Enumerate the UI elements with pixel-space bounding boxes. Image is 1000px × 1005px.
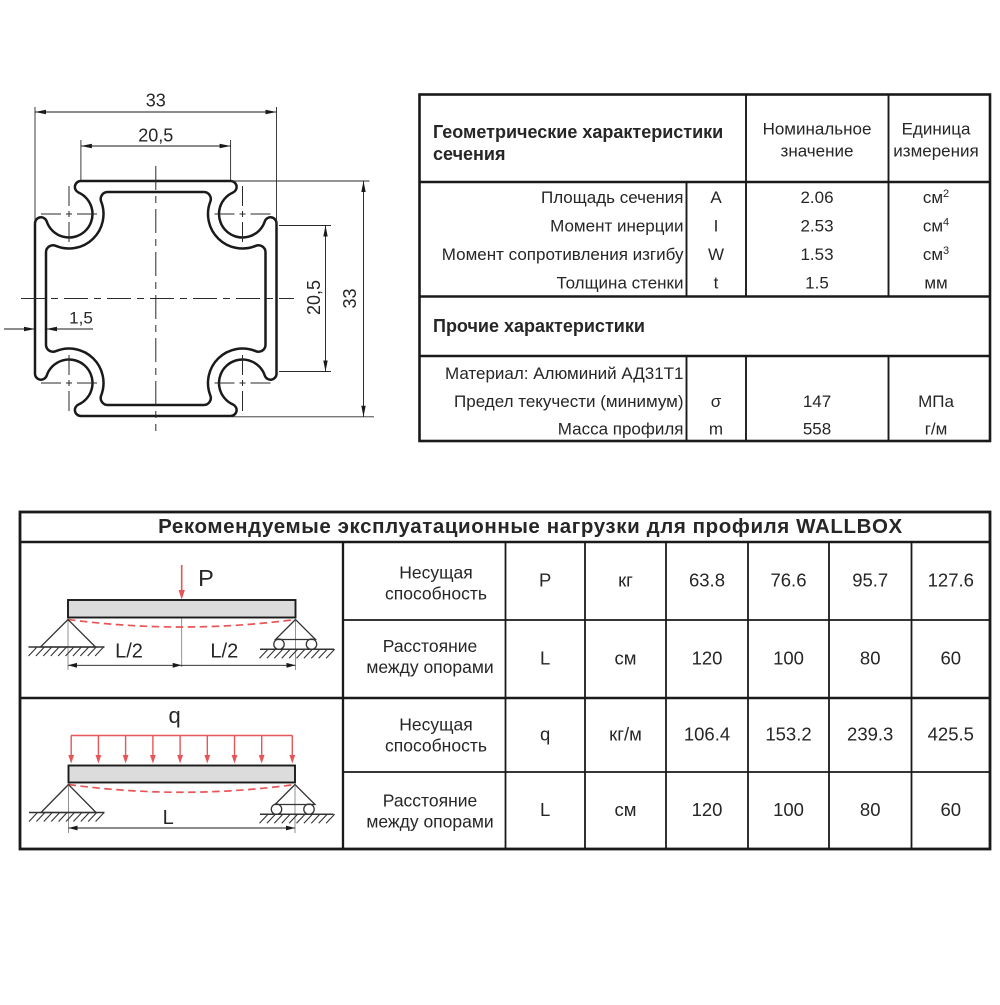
svg-text:см3: см3 [923, 245, 949, 264]
svg-text:Несущая: Несущая [399, 715, 472, 735]
svg-text:Рекомендуемые эксплуатационные: Рекомендуемые эксплуатационные нагрузки … [158, 515, 903, 538]
svg-text:сечения: сечения [433, 144, 505, 164]
svg-text:127.6: 127.6 [928, 570, 974, 591]
svg-text:120: 120 [692, 648, 723, 669]
svg-text:Момент инерции: Момент инерции [550, 217, 683, 236]
svg-text:63.8: 63.8 [689, 570, 725, 591]
svg-text:80: 80 [860, 648, 881, 669]
svg-text:239.3: 239.3 [847, 724, 893, 745]
svg-text:способность: способность [385, 584, 487, 604]
svg-text:Геометрические характеристики: Геометрические характеристики [433, 122, 723, 142]
svg-text:Масса профиля: Масса профиля [558, 420, 684, 439]
svg-text:см2: см2 [923, 188, 949, 207]
svg-text:Расстояние: Расстояние [383, 791, 478, 811]
svg-text:1.53: 1.53 [800, 245, 833, 264]
svg-text:Расстояние: Расстояние [383, 636, 478, 656]
svg-text:см4: см4 [923, 217, 949, 236]
svg-text:P: P [539, 570, 551, 591]
svg-text:147: 147 [803, 392, 831, 411]
svg-text:Площадь сечения: Площадь сечения [541, 188, 684, 207]
svg-text:измерения: измерения [893, 142, 978, 161]
svg-text:153.2: 153.2 [765, 724, 811, 745]
svg-text:Толщина стенки: Толщина стенки [557, 274, 684, 293]
svg-text:106.4: 106.4 [684, 724, 730, 745]
svg-text:20,5: 20,5 [138, 126, 173, 146]
svg-text:558: 558 [803, 420, 831, 439]
svg-text:L/2: L/2 [210, 641, 238, 663]
svg-text:20,5: 20,5 [304, 280, 324, 315]
svg-text:2.53: 2.53 [800, 217, 833, 236]
svg-text:q: q [540, 724, 550, 745]
svg-text:100: 100 [773, 799, 804, 820]
svg-text:60: 60 [941, 648, 962, 669]
svg-text:L: L [163, 807, 174, 829]
svg-text:A: A [710, 188, 722, 207]
svg-text:между опорами: между опорами [366, 657, 493, 677]
svg-text:мм: мм [924, 274, 947, 293]
svg-text:95.7: 95.7 [852, 570, 888, 591]
svg-text:Момент сопротивления изгибу: Момент сопротивления изгибу [442, 245, 684, 264]
svg-text:кг/м: кг/м [609, 724, 642, 745]
svg-text:W: W [708, 245, 724, 264]
svg-text:способность: способность [385, 736, 487, 756]
svg-text:80: 80 [860, 799, 881, 820]
svg-text:L: L [540, 648, 550, 669]
svg-text:σ: σ [711, 392, 722, 411]
svg-text:Прочие характеристики: Прочие характеристики [433, 316, 645, 336]
svg-text:кг: кг [618, 570, 633, 591]
svg-text:120: 120 [692, 799, 723, 820]
svg-text:см: см [615, 799, 637, 820]
svg-text:между опорами: между опорами [366, 812, 493, 832]
svg-text:Материал: Алюминий АД31Т1: Материал: Алюминий АД31Т1 [445, 364, 684, 383]
svg-text:см: см [615, 648, 637, 669]
svg-text:I: I [714, 217, 719, 236]
svg-text:q: q [168, 703, 180, 728]
svg-text:33: 33 [146, 91, 166, 111]
svg-text:t: t [714, 274, 719, 293]
svg-text:Предел текучести (минимум): Предел текучести (минимум) [454, 392, 683, 411]
svg-text:L/2: L/2 [115, 641, 143, 663]
svg-text:Единица: Единица [902, 120, 971, 139]
svg-text:76.6: 76.6 [770, 570, 806, 591]
svg-text:г/м: г/м [925, 420, 948, 439]
svg-text:Номинальное: Номинальное [763, 120, 872, 139]
svg-text:100: 100 [773, 648, 804, 669]
svg-text:P: P [198, 565, 214, 591]
svg-text:33: 33 [340, 288, 360, 308]
svg-text:60: 60 [941, 799, 962, 820]
svg-text:значение: значение [781, 142, 854, 161]
svg-text:1,5: 1,5 [69, 309, 93, 328]
svg-text:1.5: 1.5 [805, 274, 829, 293]
svg-text:L: L [540, 799, 550, 820]
svg-text:Несущая: Несущая [399, 563, 472, 583]
svg-text:2.06: 2.06 [800, 188, 833, 207]
svg-text:m: m [709, 420, 723, 439]
svg-text:МПа: МПа [918, 392, 954, 411]
svg-text:425.5: 425.5 [928, 724, 974, 745]
